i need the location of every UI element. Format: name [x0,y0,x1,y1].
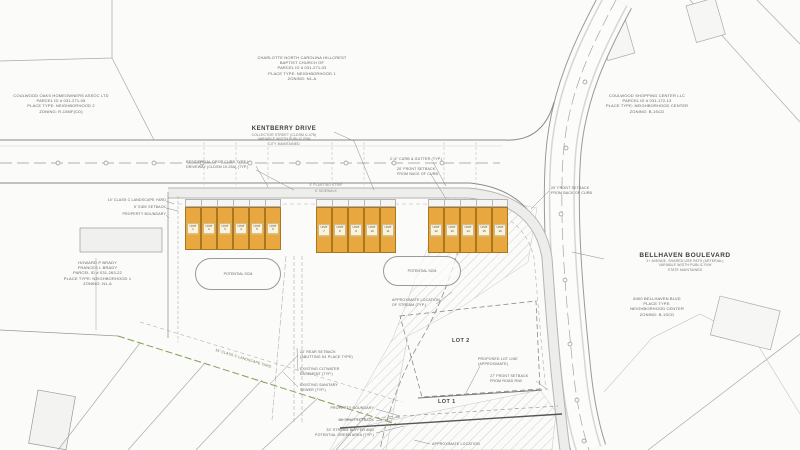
proposed-lot-line-callout: PROPOSED LOT LINE (APPROXIMATE) [478,357,518,367]
townhouse-unit: UNIT16 [492,207,508,253]
parcel-church-label: CHARLOTTE NORTH CAROLINA HILLCREST BAPTI… [232,55,372,81]
water-easement-callout: EXISTING CLTWATER EASEMENT (TYP.) [300,367,339,377]
townhouse-unit: UNIT11 [380,207,396,253]
building-1-porch-strip [185,199,281,207]
parcel-shopping-center-label: COULWOOD SHOPPING CENTER LLC PARCEL ID #… [582,93,712,114]
front-setback-callout-1: 20' FRONT SETBACK FROM BACK OF CURB [397,167,438,177]
parcel-brady-label: HOWARD P BRADY FRANCES L BRADY PARCEL ID… [40,260,155,286]
townhouse-unit: UNIT8 [332,207,348,253]
townhouse-unit: UNIT2 [201,207,217,250]
townhouse-unit: UNIT3 [217,207,233,250]
potential-scm-2-label: POTENTIAL SCM [408,269,437,273]
townhouse-unit: UNIT14 [460,207,476,253]
townhouse-unit: UNIT1 [185,207,201,250]
unit-label: UNIT1 [187,223,199,235]
sanitary-sewer-callout: EXISTING SANITARY SEWER (TYP.) [300,383,338,393]
potential-scm-2: POTENTIAL SCM [383,256,461,286]
building-2-porch-strip [316,199,396,207]
parcel-bellhaven-site-label: 8400 BELLHAVEN BLVD PLACE TYPE: NEIGHBOR… [598,296,716,317]
unit-label: UNIT14 [462,224,474,236]
unit-label: UNIT2 [203,223,215,235]
bellhaven-boulevard-label: BELLHAVEN BOULEVARD 2+ AVENUE, SHARED-US… [606,252,764,272]
property-boundary-callout-left: PROPERTY BOUNDARY [60,212,166,217]
parcel-coulwood-oaks-label: COULWOOD OAKS HOMEOWNERS ASSOC LTD PARCE… [0,93,122,114]
front-setback-callout-2: 20' FRONT SETBACK FROM BACK OF CURB [551,186,592,196]
townhouse-unit: UNIT12 [428,207,444,253]
building-3-porch-strip [428,199,508,207]
unit-label: UNIT7 [318,224,330,236]
landscape-10-callout: 10' CLASS C LANDSCAPE YARD [60,198,166,203]
townhouse-unit: UNIT9 [348,207,364,253]
curb-gutter-callout: 2'-6" CURB & GUTTER (TYP.) [390,157,442,162]
unit-label: UNIT16 [494,224,506,236]
unit-label: UNIT10 [366,224,378,236]
townhouse-unit: UNIT6 [265,207,281,250]
unit-label: UNIT15 [478,224,490,236]
townhouse-unit: UNIT4 [233,207,249,250]
townhouse-unit: UNIT5 [249,207,265,250]
drop-curb-callout: RESIDENTIAL DROP CURB TYPE I DRIVEWAY (C… [186,160,248,170]
townhouse-unit: UNIT13 [444,207,460,253]
potential-scm-1-label: POTENTIAL SCM [224,272,253,276]
unit-label: UNIT6 [267,223,279,235]
rear-40-callout: 40' REAR SETBACK [300,418,374,423]
townhouse-unit: UNIT7 [316,207,332,253]
unit-label: UNIT3 [219,223,231,235]
stream-location-callout: APPROXIMATE LOCATION OF STREAM (TYP.) [392,298,440,308]
stream-buffer-callout: 30' STREAM BUFFER AND POTENTIAL GREEN AR… [270,428,374,438]
unit-label: UNIT8 [334,224,346,236]
unit-label: UNIT9 [350,224,362,236]
lot-1-label: LOT 1 [438,399,456,405]
unit-label: UNIT4 [235,223,247,235]
kentberry-drive-label: KENTBERRY DRIVE COLLECTOR STREET (CLDSM … [228,126,340,146]
property-boundary-callout-bottom: PROPERTY BOUNDARY [290,406,374,411]
unit-label: UNIT12 [430,224,442,236]
sidewalk-label: 6' SIDEWALK [300,189,352,193]
road-setback-callout: 27' FRONT SETBACK FROM ROAD R/W [490,374,528,384]
unit-label: UNIT11 [382,224,394,236]
unit-label: UNIT5 [251,223,263,235]
potential-scm-1: POTENTIAL SCM [195,258,281,290]
townhouse-unit: UNIT15 [476,207,492,253]
plan-linework [0,0,800,450]
approx-location-callout: APPROXIMATE LOCATION [432,442,480,447]
unit-label: UNIT13 [446,224,458,236]
rear-setback-callout: 20' REAR SETBACK (ABUTTING N1 PLACE TYPE… [300,350,353,360]
lot-2-label: LOT 2 [452,338,470,344]
planting-strip-label: 5' PLANTING STRIP [296,183,356,187]
townhouse-unit: UNIT10 [364,207,380,253]
side-setback-callout: 5' SIDE SETBACK [60,205,166,210]
bellhaven-road [562,0,616,450]
site-plan: UNIT1UNIT2UNIT3UNIT4UNIT5UNIT6UNIT7UNIT8… [0,0,800,450]
